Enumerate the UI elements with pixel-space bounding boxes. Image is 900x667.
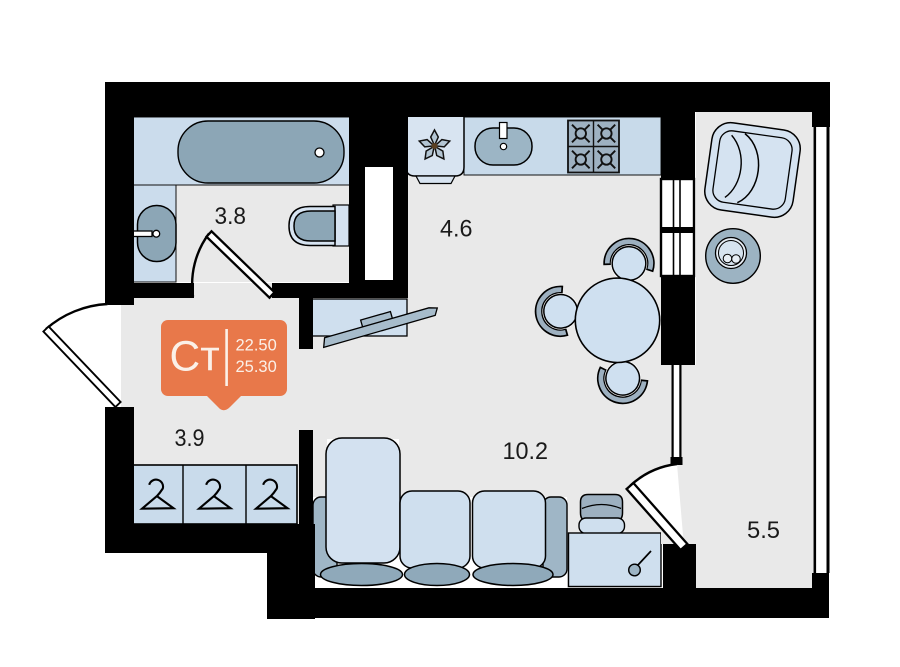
svg-text:3.8: 3.8: [215, 203, 247, 230]
svg-text:22.50: 22.50: [236, 337, 277, 355]
svg-text:4.6: 4.6: [440, 216, 473, 243]
svg-text:3.9: 3.9: [175, 425, 205, 452]
svg-text:25.30: 25.30: [236, 358, 277, 376]
svg-text:Ст: Ст: [170, 334, 220, 381]
svg-text:5.5: 5.5: [747, 517, 780, 544]
svg-text:10.2: 10.2: [503, 438, 549, 465]
